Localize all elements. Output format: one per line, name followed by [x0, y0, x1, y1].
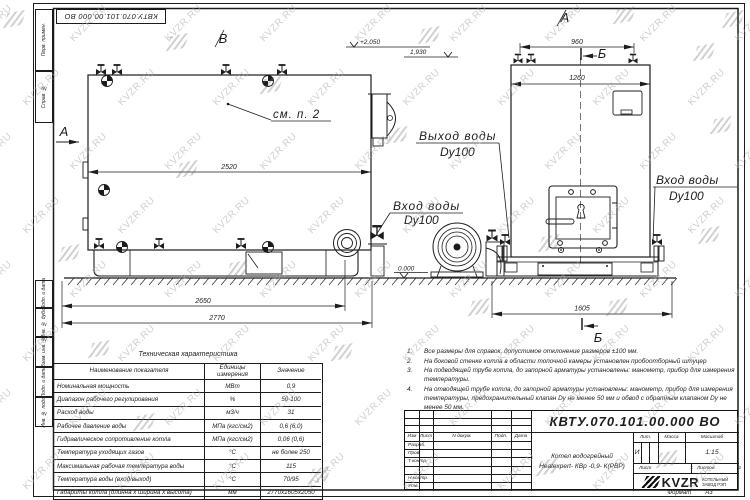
outlet-water-dn: Dy100 [440, 145, 475, 159]
inlet-right-dn: Dy100 [669, 189, 704, 203]
dimension-lines-right [492, 43, 672, 318]
spec-cell: 50-100 [260, 392, 321, 405]
side-view-valves [94, 65, 287, 249]
spec-cell: 2770х1605х2050 [260, 486, 321, 499]
frame-side-box: Инв. № дубл. [35, 308, 53, 337]
top-stamp: КВТУ.070.101.00.000 ВО [56, 9, 166, 24]
spec-cell: мм [204, 486, 260, 499]
dim-2770: 2770 [208, 315, 225, 322]
spec-cell: 115 [260, 459, 321, 472]
spec-cell: Габариты котла (длинна х ширина х высота… [54, 486, 204, 499]
spec-cell: 70/95 [260, 472, 321, 485]
note-item: 2.На боковой стенке котла в области топо… [404, 357, 740, 366]
frame-side-box: Справ. № [35, 71, 53, 123]
sheet-label: Лист [639, 466, 651, 471]
boiler-front-view [497, 58, 664, 276]
elevation-marks [346, 47, 458, 273]
kvzr-logo-icon [641, 476, 661, 488]
lifting-point-marks [99, 76, 274, 253]
section-a-label-left: А [59, 124, 69, 139]
title-block: КВТУ.070.101.00.000 ВО ИзмЛистN докум.По… [404, 410, 738, 490]
spec-cell: Диапазон рабочего регулирования [54, 392, 204, 405]
feed-valve [368, 226, 387, 276]
spec-cell: Гидравлическое сопротивление котла [54, 432, 204, 445]
frame-side-box: Взам. инв. № [35, 337, 53, 367]
spec-header-units: Единицы измерения [204, 364, 260, 379]
sheets-label: Листов [697, 466, 714, 471]
inlet-water-label: Вход воды [393, 199, 460, 213]
tb-row-label: Пров. [406, 449, 435, 457]
scale-value: 1:15 [685, 442, 739, 463]
spec-table-row: Температура воды (вход/выход)°С70/95 [54, 472, 322, 485]
frame-side-box: Перв. примен. [35, 9, 53, 71]
title-doc-number: КВТУ.070.101.00.000 ВО [531, 411, 739, 432]
spec-table-row: Номинальная мощностьМВт0,9 [54, 379, 322, 392]
lit-value: И [633, 442, 641, 463]
section-b-label-top: Б [598, 46, 607, 61]
spec-table-row: Температура уходящих газов°Сне более 250 [54, 446, 322, 459]
spec-table-row: Расход водым3/ч31 [54, 406, 322, 419]
elev-zero-value: 0.000 [398, 266, 415, 273]
spec-cell: не более 250 [260, 446, 321, 459]
dim-960: 960 [571, 39, 583, 46]
elev-mid-value: 1,930 [410, 49, 427, 56]
spec-cell: °С [204, 459, 260, 472]
spec-cell: МВт [204, 379, 260, 392]
product-name-line2: Heatexpert- КВр -0,9- К(РВР) [539, 462, 625, 472]
section-v-label: В [219, 31, 228, 46]
spec-table-row: Габариты котла (длинна х ширина х высота… [54, 486, 322, 499]
spec-cell: 0,6 (6,0) [260, 419, 321, 432]
spec-cell: Расход воды [54, 406, 204, 419]
spec-cell: 0,06 (0,6) [260, 432, 321, 445]
tb-row-label: Утв. [406, 482, 435, 490]
sheets-cell: Листов 2 [693, 463, 745, 473]
tb-column-header: Подп. [491, 432, 511, 441]
spec-cell: Рабочее давление воды [54, 419, 204, 432]
spec-cell: Номинальная мощность [54, 379, 204, 392]
ground-line [64, 278, 677, 285]
notes-block: 1.Все размеры для справок, допустимое от… [404, 347, 740, 413]
spec-cell: МПа (кгс/см2) [204, 432, 260, 445]
note-item: 1.Все размеры для справок, допустимое от… [404, 347, 740, 356]
inlet-right-label: Вход воды [656, 173, 719, 187]
note-item: 4.На отводящей трубе котла, до запорной … [404, 385, 740, 412]
brand-company-line1: КОТЕЛЬНЫЙ [702, 477, 728, 482]
lit-header: Лит. [633, 432, 658, 442]
spec-table: Техническая характеристика Наименование … [53, 351, 323, 500]
mass-header: Масса [658, 432, 685, 442]
spec-cell: % [204, 392, 260, 405]
spec-header-name: Наименование показателя [54, 364, 204, 379]
spec-cell: °С [204, 446, 260, 459]
tb-row-label [406, 466, 435, 474]
outlet-water-label: Выход воды [419, 129, 496, 143]
spec-header-value: Значение [260, 364, 321, 379]
dim-1605: 1605 [574, 306, 590, 313]
dim-2520: 2520 [220, 164, 237, 171]
dim-2650: 2650 [194, 298, 211, 305]
spec-cell: 0,9 [260, 379, 321, 392]
spec-cell: Максимальная рабочая температура воды [54, 459, 204, 472]
frame-side-box: Подп. и дата [35, 280, 53, 308]
note-item: 3.На подводящей трубе котла, до запорной… [404, 366, 740, 384]
product-name-line1: Котел водогрейный [551, 452, 613, 462]
format-word: Формат [667, 490, 691, 496]
tb-column-header: Изм [405, 432, 419, 441]
spec-cell: °С [204, 472, 260, 485]
elev-top-value: +2,050 [360, 39, 380, 46]
tb-column-header: Лист [419, 432, 433, 441]
drawing-sheet: см. п. 2 В А +2,050 1,930 0.000 [0, 0, 750, 500]
brand-name: KVZR [662, 475, 699, 490]
sheets-value: 2 [738, 466, 741, 471]
spec-cell: м3/ч [204, 406, 260, 419]
brand-company-line2: ЗАВОД РЭП [702, 482, 726, 487]
spec-table-title: Техническая характеристика [53, 351, 323, 363]
tb-row-label: Т.контр. [406, 457, 435, 465]
spec-table-row: Диапазон рабочего регулирования%50-100 [54, 392, 322, 405]
frame-side-box: Инв. № подл. [35, 397, 53, 427]
spec-cell: Температура уходящих газов [54, 446, 204, 459]
section-b-top [581, 48, 597, 60]
section-b-bottom [582, 318, 598, 330]
spec-cell: 31 [260, 406, 321, 419]
inlet-water-dn: Dy100 [404, 213, 439, 227]
scale-header: Масштаб [685, 432, 739, 442]
product-name: Котел водогрейный Heatexpert- КВр -0,9- … [532, 434, 632, 489]
callout-label: см. п. 2 [273, 109, 320, 121]
format-label: Формат А3 [640, 490, 740, 496]
top-stamp-number: КВТУ.070.101.00.000 ВО [64, 12, 157, 21]
brand-cell: KVZR КОТЕЛЬНЫЙ ЗАВОД РЭП [633, 473, 739, 491]
format-value: А3 [705, 490, 712, 496]
spec-cell: Температура воды (вход/выход) [54, 472, 204, 485]
dim-1260: 1260 [569, 75, 585, 82]
section-b-label-bottom: Б [594, 330, 603, 345]
spec-table-row: Рабочее давление водыМПа (кгс/см2)0,6 (6… [54, 419, 322, 432]
spec-table-row: Гидравлическое сопротивление котлаМПа (к… [54, 432, 322, 445]
frame-side-box: Подп. и дата [35, 367, 53, 397]
brand-company: КОТЕЛЬНЫЙ ЗАВОД РЭП [702, 477, 728, 488]
spec-cell: МПа (кгс/см2) [204, 419, 260, 432]
tb-column-header: Дата [511, 432, 531, 441]
tb-column-header: N докум. [433, 432, 491, 441]
sheet-cell: Лист 1 [635, 463, 697, 473]
spec-table-header: Наименование показателя Единицы измерени… [54, 364, 322, 379]
tb-row-label: Н.контр. [406, 474, 435, 482]
spec-table-row: Максимальная рабочая температура воды°С1… [54, 459, 322, 472]
tb-row-label: Разраб. [406, 441, 435, 449]
